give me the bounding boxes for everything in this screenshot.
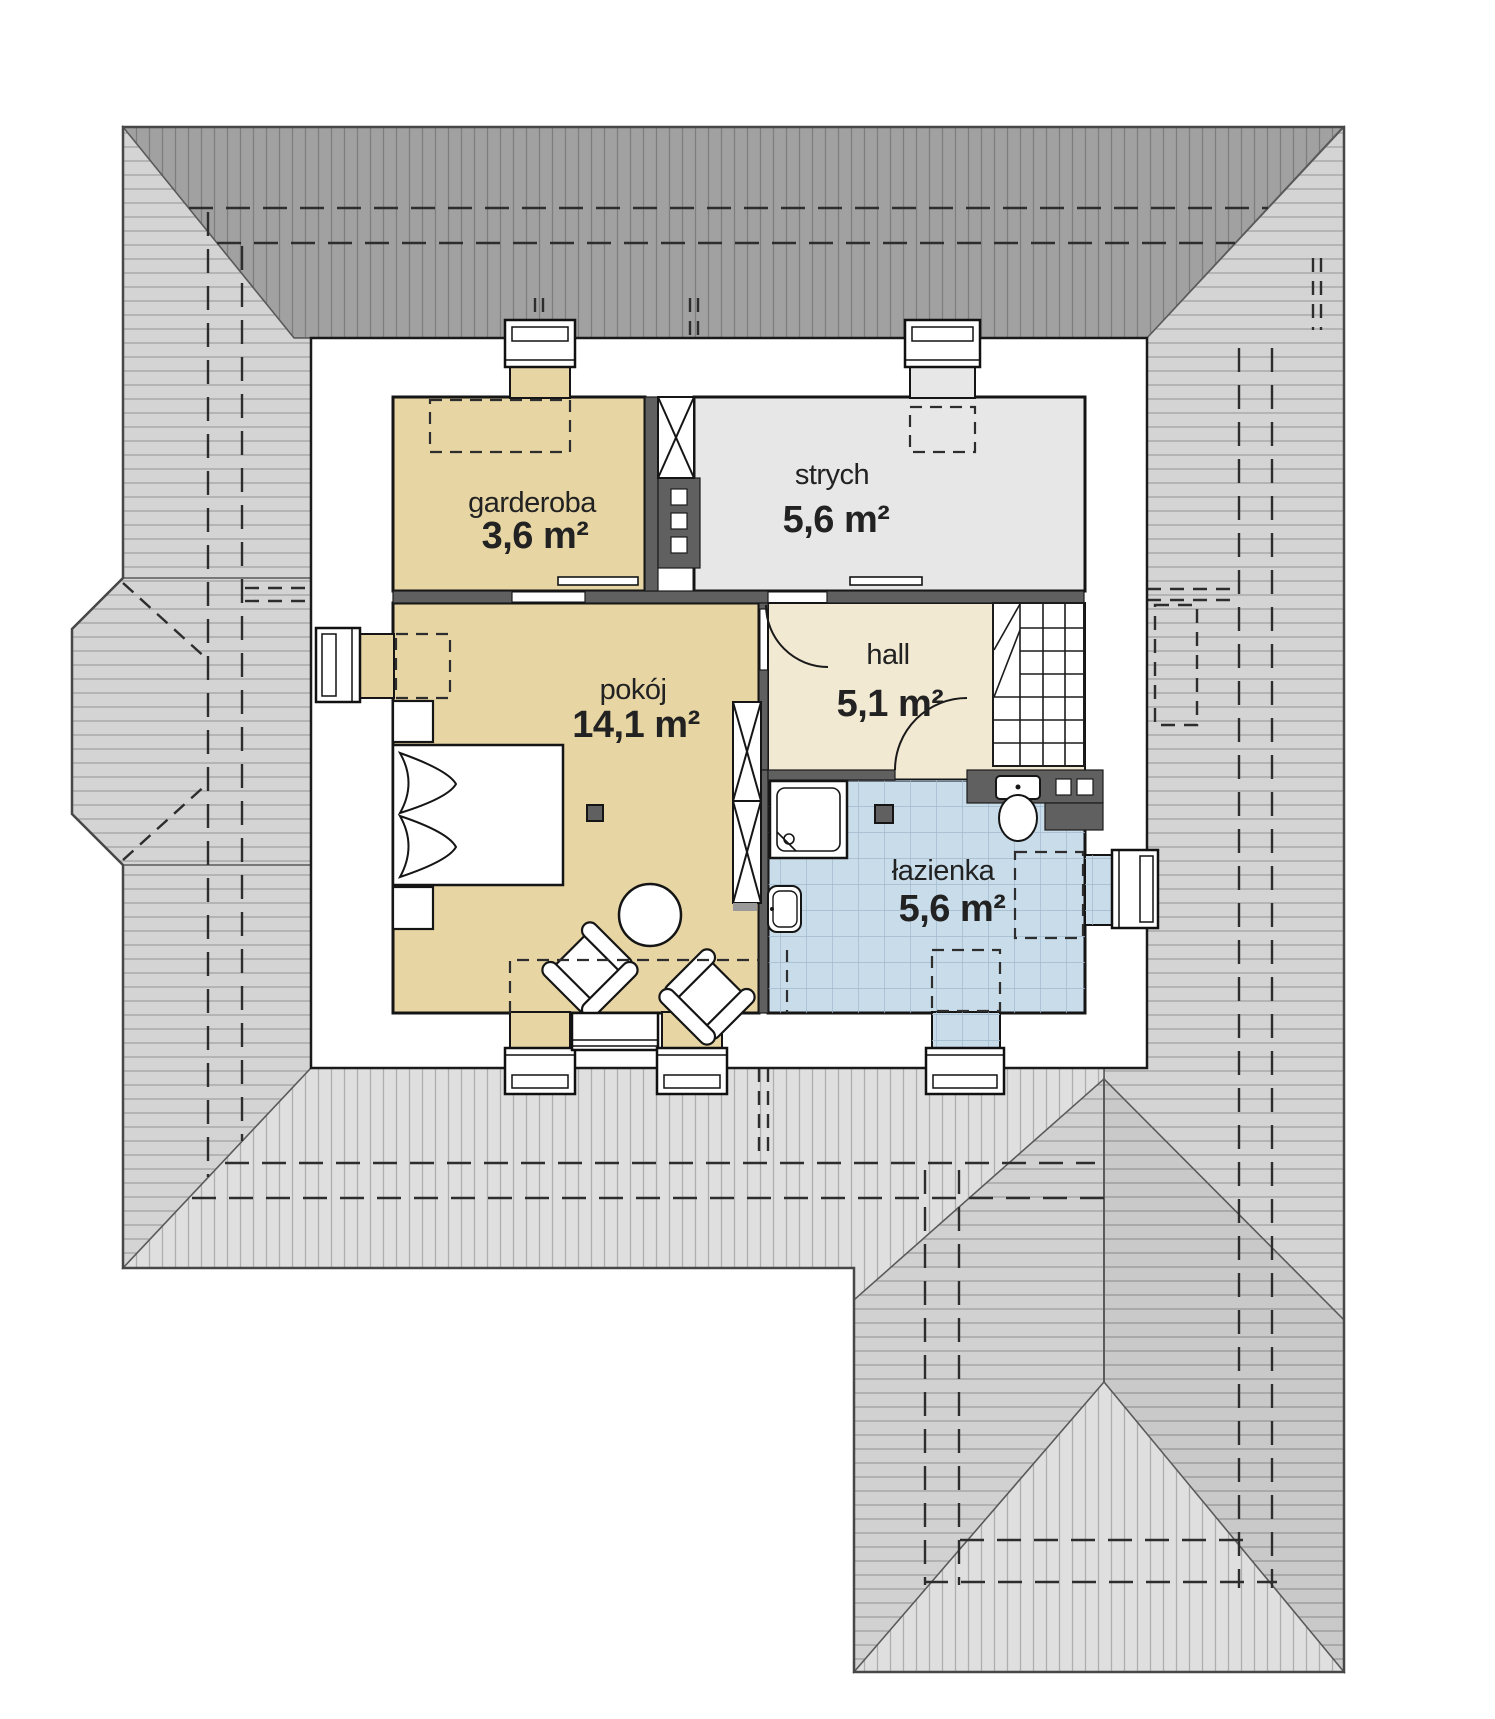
window-bath-right: [1112, 850, 1158, 928]
vent-shaft-icon: [658, 397, 694, 478]
wardrobe-icon: [733, 702, 761, 911]
toilet-icon: [996, 776, 1040, 841]
niche-left-window: [360, 634, 394, 698]
floor-plan-drawing: garderoba 3,6 m² strych 5,6 m² pokój 14,…: [0, 0, 1495, 1719]
window-garderoba-dormer: [505, 320, 575, 367]
staircase: [993, 603, 1084, 766]
chimney-flue-1: [671, 489, 687, 505]
wall-garderoba-bottom: [393, 591, 512, 603]
washbasin-icon: [768, 886, 801, 932]
window-strych-dormer: [905, 320, 980, 367]
niche-bottom-dormer-1: [510, 1012, 570, 1048]
pokoj-post: [587, 805, 603, 821]
table-icon: [619, 884, 681, 946]
wall-lazienka-top: [768, 770, 895, 780]
roof-slope-top: [123, 127, 1343, 338]
window-bottom-middle: [572, 1013, 658, 1050]
nightstand-1: [393, 701, 433, 742]
area-garderoba: 3,6 m²: [482, 515, 589, 557]
counter-box-2: [1077, 779, 1093, 795]
window-left: [316, 628, 360, 702]
chimney-flue-2: [671, 513, 687, 529]
label-strych: strych: [795, 459, 869, 491]
label-lazienka: łazienka: [892, 855, 996, 887]
wall-garderoba-right: [645, 397, 658, 591]
label-pokoj: pokój: [600, 674, 667, 706]
area-lazienka: 5,6 m²: [899, 888, 1006, 930]
area-strych: 5,6 m²: [783, 499, 890, 541]
bathroom-post: [875, 805, 893, 823]
wall-hall-top-left: [585, 591, 768, 603]
counter-box-1: [1056, 779, 1071, 795]
niche-strych-dormer: [910, 365, 975, 398]
window-bath-bottom-dormer: [926, 1048, 1004, 1094]
room-strych: [694, 397, 1085, 591]
house: garderoba 3,6 m² strych 5,6 m² pokój 14,…: [311, 320, 1158, 1094]
niche-bath-right-window: [1085, 855, 1112, 925]
floor-plan-page: garderoba 3,6 m² strych 5,6 m² pokój 14,…: [0, 0, 1495, 1719]
niche-bath-bottom-dormer: [932, 1012, 1000, 1048]
area-pokoj: 14,1 m²: [572, 704, 699, 746]
label-hall: hall: [866, 639, 909, 671]
window-bottom-dormer-2: [657, 1048, 727, 1094]
bed-icon: [393, 745, 563, 885]
niche-garderoba-dormer: [510, 365, 570, 398]
shower-icon: [770, 781, 847, 858]
window-bottom-dormer-1: [505, 1048, 575, 1094]
nightstand-2: [393, 887, 433, 929]
vanity-counter-step: [1045, 803, 1103, 830]
opening-strych: [850, 577, 922, 585]
opening-garderoba: [558, 577, 638, 585]
wall-hall-top-right: [827, 591, 1084, 603]
chimney-flue-3: [671, 537, 687, 553]
area-hall: 5,1 m²: [837, 683, 944, 725]
